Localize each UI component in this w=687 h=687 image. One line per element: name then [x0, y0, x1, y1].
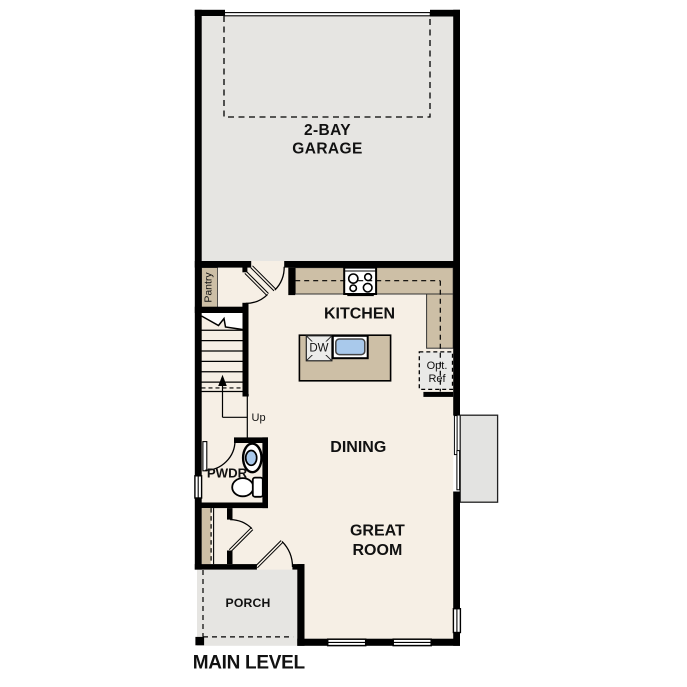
svg-text:Ref: Ref — [428, 373, 446, 385]
svg-text:Pantry: Pantry — [203, 272, 215, 303]
svg-text:Up: Up — [252, 412, 266, 424]
svg-text:GARAGE: GARAGE — [292, 141, 362, 158]
svg-text:PORCH: PORCH — [225, 596, 270, 610]
svg-text:GREAT: GREAT — [350, 523, 405, 540]
svg-text:DINING: DINING — [330, 439, 386, 456]
svg-text:Opt.: Opt. — [427, 360, 448, 372]
svg-text:KITCHEN: KITCHEN — [324, 306, 395, 323]
svg-text:2-BAY: 2-BAY — [304, 122, 351, 139]
svg-text:PWDR: PWDR — [207, 466, 248, 481]
svg-text:ROOM: ROOM — [353, 542, 403, 559]
svg-text:MAIN LEVEL: MAIN LEVEL — [193, 653, 306, 674]
svg-text:DW: DW — [309, 343, 328, 355]
